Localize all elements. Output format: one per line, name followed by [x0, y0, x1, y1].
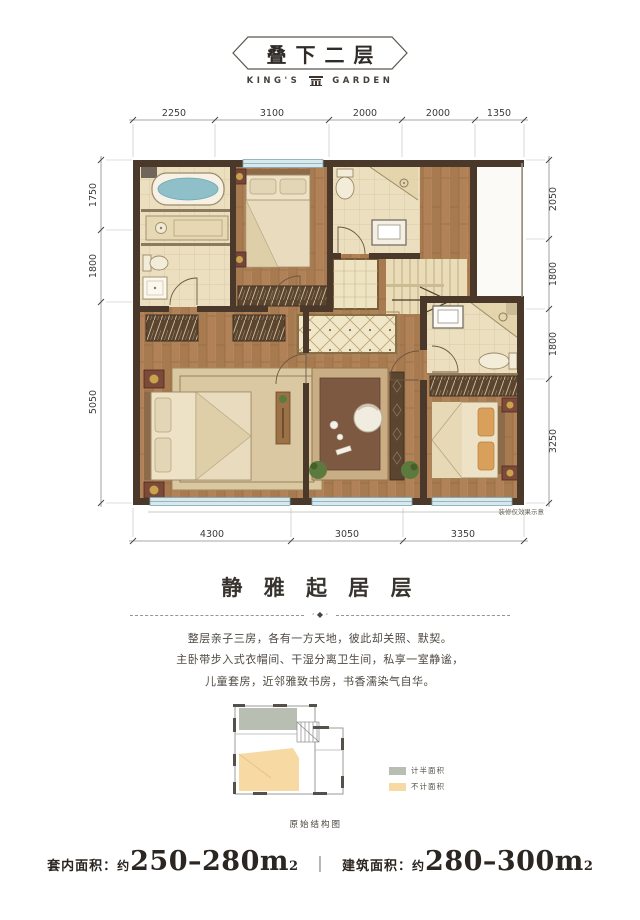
- dim-top-4: 2000: [426, 108, 450, 119]
- diagram-legend: 计半面积 不计面积: [389, 765, 445, 792]
- wardrobe-icon: [238, 286, 327, 306]
- dim-right-2: 1800: [548, 262, 559, 286]
- separator: ｜: [312, 851, 328, 875]
- shaft-icon: [141, 166, 157, 178]
- dim-top-2: 3100: [260, 108, 284, 119]
- plant-icon: [401, 461, 419, 479]
- gross-area-label: 建筑面积：: [342, 855, 412, 874]
- structure-diagram: 计半面积 不计面积: [195, 698, 445, 816]
- tableware-icon: [330, 421, 338, 429]
- sitting-room: [309, 368, 419, 480]
- page-title: 叠下二层: [232, 36, 408, 70]
- bed-icon: [432, 402, 505, 478]
- legend-label: 不计面积: [411, 781, 445, 792]
- gross-area-value: 280–300m: [425, 846, 584, 877]
- paragraph-line: 主卧带步入式衣帽间、干湿分离卫生间，私享一室静谧，: [0, 649, 640, 670]
- foyer-rug: [295, 312, 399, 356]
- dim-right-3: 1800: [548, 332, 559, 356]
- floor-plan: 2250 3100 2000 2000 1350 4300 3050 3350 …: [60, 100, 580, 560]
- brand-prefix: KING'S: [247, 76, 301, 86]
- shower-tray-icon: [143, 277, 167, 299]
- tv-console-icon: [276, 392, 290, 444]
- wardrobe-icon: [233, 315, 285, 341]
- structure-diagram-drawing: [213, 698, 363, 810]
- dim-right-1: 2050: [548, 187, 559, 211]
- toilet-icon: [479, 353, 517, 369]
- bed-icon: [246, 169, 310, 267]
- description-paragraph: 整层亲子三房，各有一方天地，彼此却关照、默契。 主卧带步入式衣帽间、干湿分离卫生…: [0, 628, 640, 692]
- dim-bottom-1: 4300: [200, 529, 224, 540]
- paragraph-line: 整层亲子三房，各有一方天地，彼此却关照、默契。: [0, 628, 640, 649]
- sink-icon: [433, 306, 463, 328]
- study-nook: [333, 259, 378, 309]
- bed-icon: [144, 392, 251, 480]
- inner-area-label: 套内面积：: [47, 855, 117, 874]
- dim-top-1: 2250: [162, 108, 186, 119]
- diagram-caption: 原始结构图: [290, 818, 343, 830]
- window-icon: [432, 498, 512, 506]
- wardrobe-icon: [146, 315, 198, 341]
- dim-top-5: 1350: [487, 108, 511, 119]
- uncounted-area-region: [239, 748, 299, 791]
- area-summary: 套内面积： 约 250–280m 2 ｜ 建筑面积： 约 280–300m 2: [0, 846, 640, 877]
- void-area: [473, 165, 522, 297]
- sink-icon: [372, 220, 406, 245]
- half-area-region: [239, 708, 297, 730]
- dim-top-3: 2000: [353, 108, 377, 119]
- armchair-icon: [354, 404, 382, 432]
- toilet-icon: [336, 169, 354, 199]
- window-icon: [150, 498, 290, 506]
- legend-swatch-orange: [389, 783, 406, 791]
- page-title-frame: 叠下二层: [232, 36, 408, 70]
- brochure-page: 叠下二层 KING'S GARDEN: [0, 0, 640, 920]
- window-icon: [312, 498, 412, 506]
- section-title: 静 雅 起 居 层: [0, 572, 640, 602]
- vanity-icon: [146, 216, 228, 240]
- section-divider: · ◆ ·: [130, 611, 510, 619]
- dim-bottom-3: 3350: [451, 529, 475, 540]
- divider-ornament-icon: · ◆ ·: [304, 611, 336, 619]
- brand-logo-icon: [307, 76, 325, 86]
- inner-area-value: 250–280m: [130, 846, 289, 877]
- dresser-icon: [390, 372, 404, 480]
- legend-item: 不计面积: [389, 781, 445, 792]
- dim-left-1: 1750: [88, 183, 99, 207]
- mini-stairs-icon: [297, 722, 319, 742]
- brand-line: KING'S GARDEN: [0, 76, 640, 86]
- dim-bottom-2: 3050: [335, 529, 359, 540]
- dim-right-4: 3250: [548, 429, 559, 453]
- wardrobe-icon: [430, 376, 518, 396]
- window-icon: [243, 160, 323, 168]
- paragraph-line: 儿童套房，近邻雅致书房，书香濡染气自华。: [0, 671, 640, 692]
- dim-left-2: 1800: [88, 254, 99, 278]
- legend-item: 计半面积: [389, 765, 445, 776]
- bathtub-icon: [152, 173, 224, 205]
- dim-left-3: 5050: [88, 390, 99, 414]
- plan-disclaimer: 装修仅效果示意: [499, 507, 545, 516]
- legend-label: 计半面积: [411, 765, 445, 776]
- brand-suffix: GARDEN: [332, 76, 393, 86]
- toilet-icon: [143, 255, 168, 271]
- legend-swatch-gray: [389, 767, 406, 775]
